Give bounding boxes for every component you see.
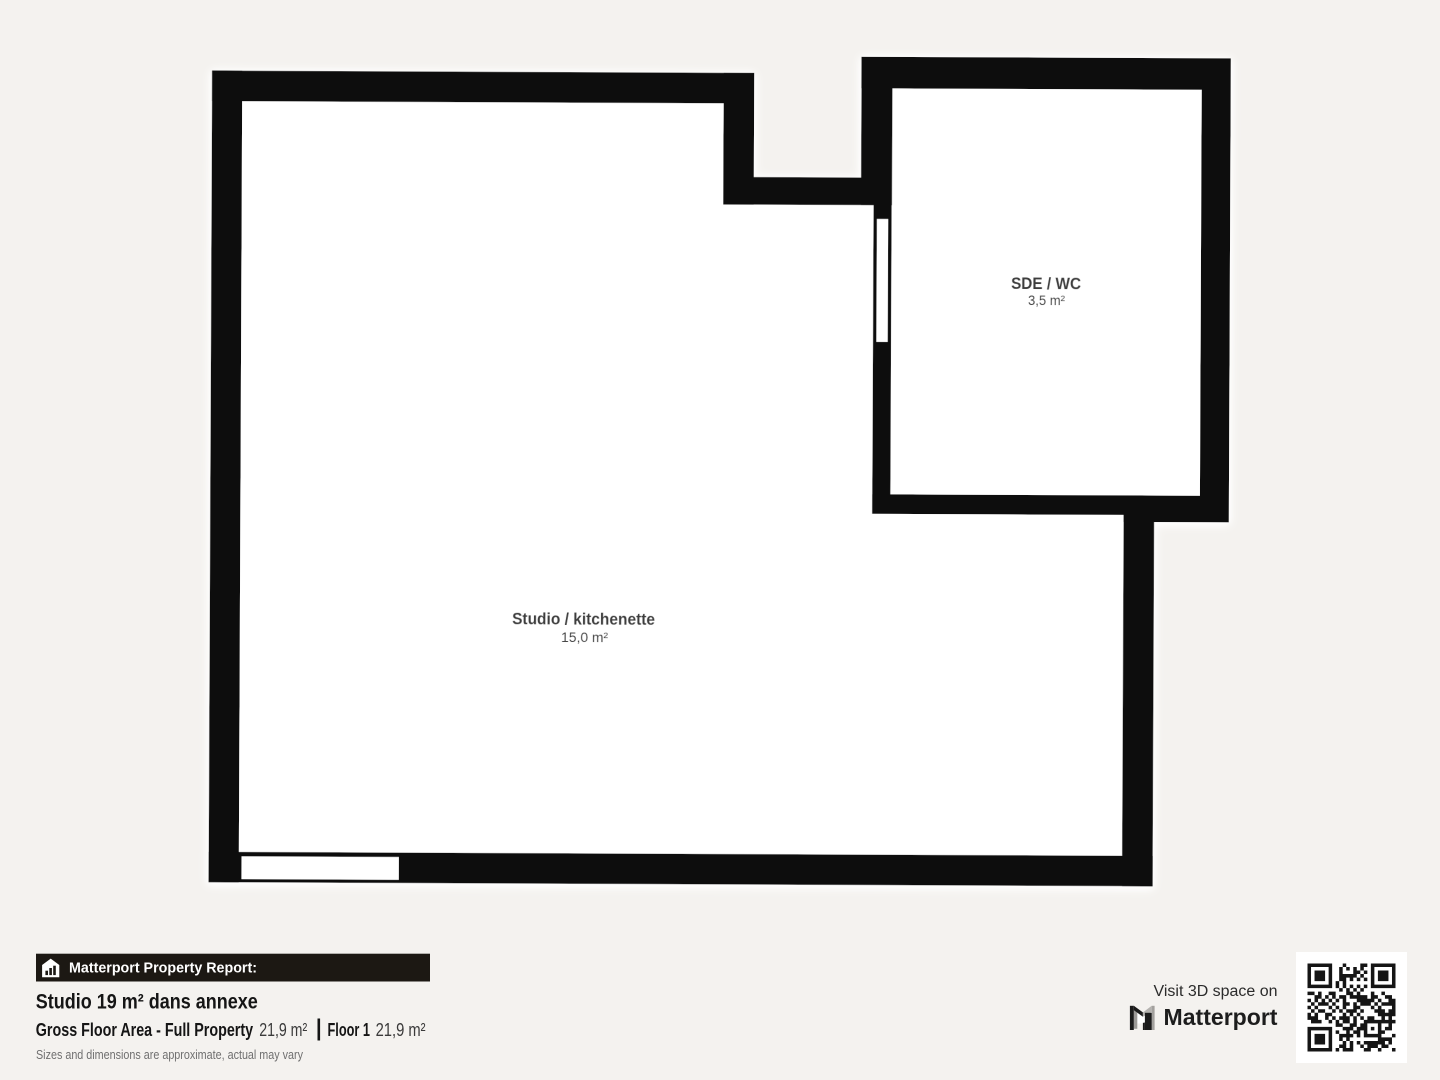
svg-text:Matterport: Matterport bbox=[1164, 1004, 1278, 1030]
svg-text:21,9 m²: 21,9 m² bbox=[259, 1019, 307, 1040]
svg-text:Floor 1: Floor 1 bbox=[328, 1019, 371, 1040]
svg-text:Visit 3D space on: Visit 3D space on bbox=[1154, 983, 1278, 1000]
svg-text:Sizes and dimensions are appro: Sizes and dimensions are approximate, ac… bbox=[36, 1047, 303, 1062]
svg-text:Matterport Property Report:: Matterport Property Report: bbox=[69, 960, 257, 976]
svg-text:21,9 m²: 21,9 m² bbox=[376, 1019, 426, 1040]
svg-text:Gross Floor Area - Full Proper: Gross Floor Area - Full Property bbox=[36, 1019, 254, 1040]
svg-text:Studio 19 m² dans annexe: Studio 19 m² dans annexe bbox=[36, 990, 258, 1013]
